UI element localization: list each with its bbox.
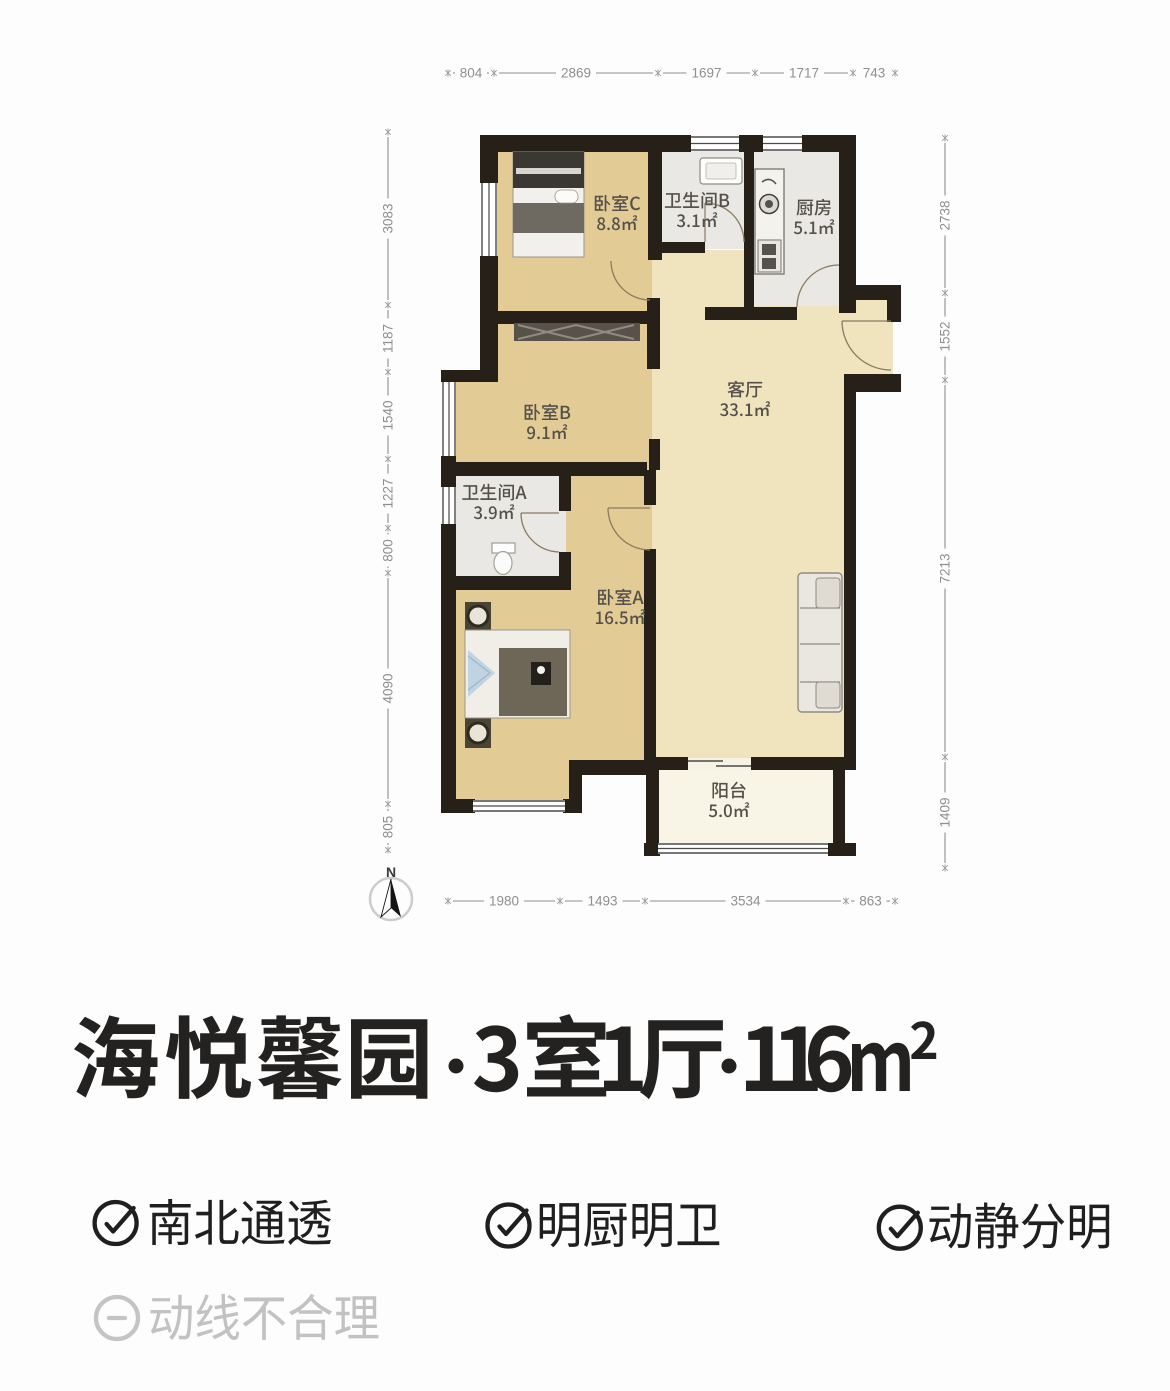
svg-text:4090: 4090 [381, 673, 396, 703]
svg-text:1697: 1697 [691, 66, 721, 81]
svg-text:1227: 1227 [381, 478, 396, 508]
svg-text:1493: 1493 [587, 894, 617, 909]
svg-text:1552: 1552 [938, 321, 953, 351]
svg-text:1717: 1717 [789, 66, 819, 81]
svg-text:1187: 1187 [381, 324, 396, 353]
svg-text:1540: 1540 [381, 400, 396, 430]
svg-text:743: 743 [863, 66, 886, 81]
svg-text:7213: 7213 [938, 553, 953, 583]
svg-text:3083: 3083 [381, 203, 396, 233]
svg-text:863: 863 [859, 894, 882, 909]
svg-text:1980: 1980 [489, 894, 519, 909]
svg-text:2738: 2738 [938, 200, 953, 230]
svg-text:2869: 2869 [561, 66, 591, 81]
svg-text:805: 805 [381, 816, 396, 839]
svg-text:3534: 3534 [730, 894, 761, 909]
svg-text:804: 804 [460, 66, 483, 81]
svg-text:800: 800 [381, 539, 396, 562]
svg-text:1409: 1409 [938, 797, 953, 827]
